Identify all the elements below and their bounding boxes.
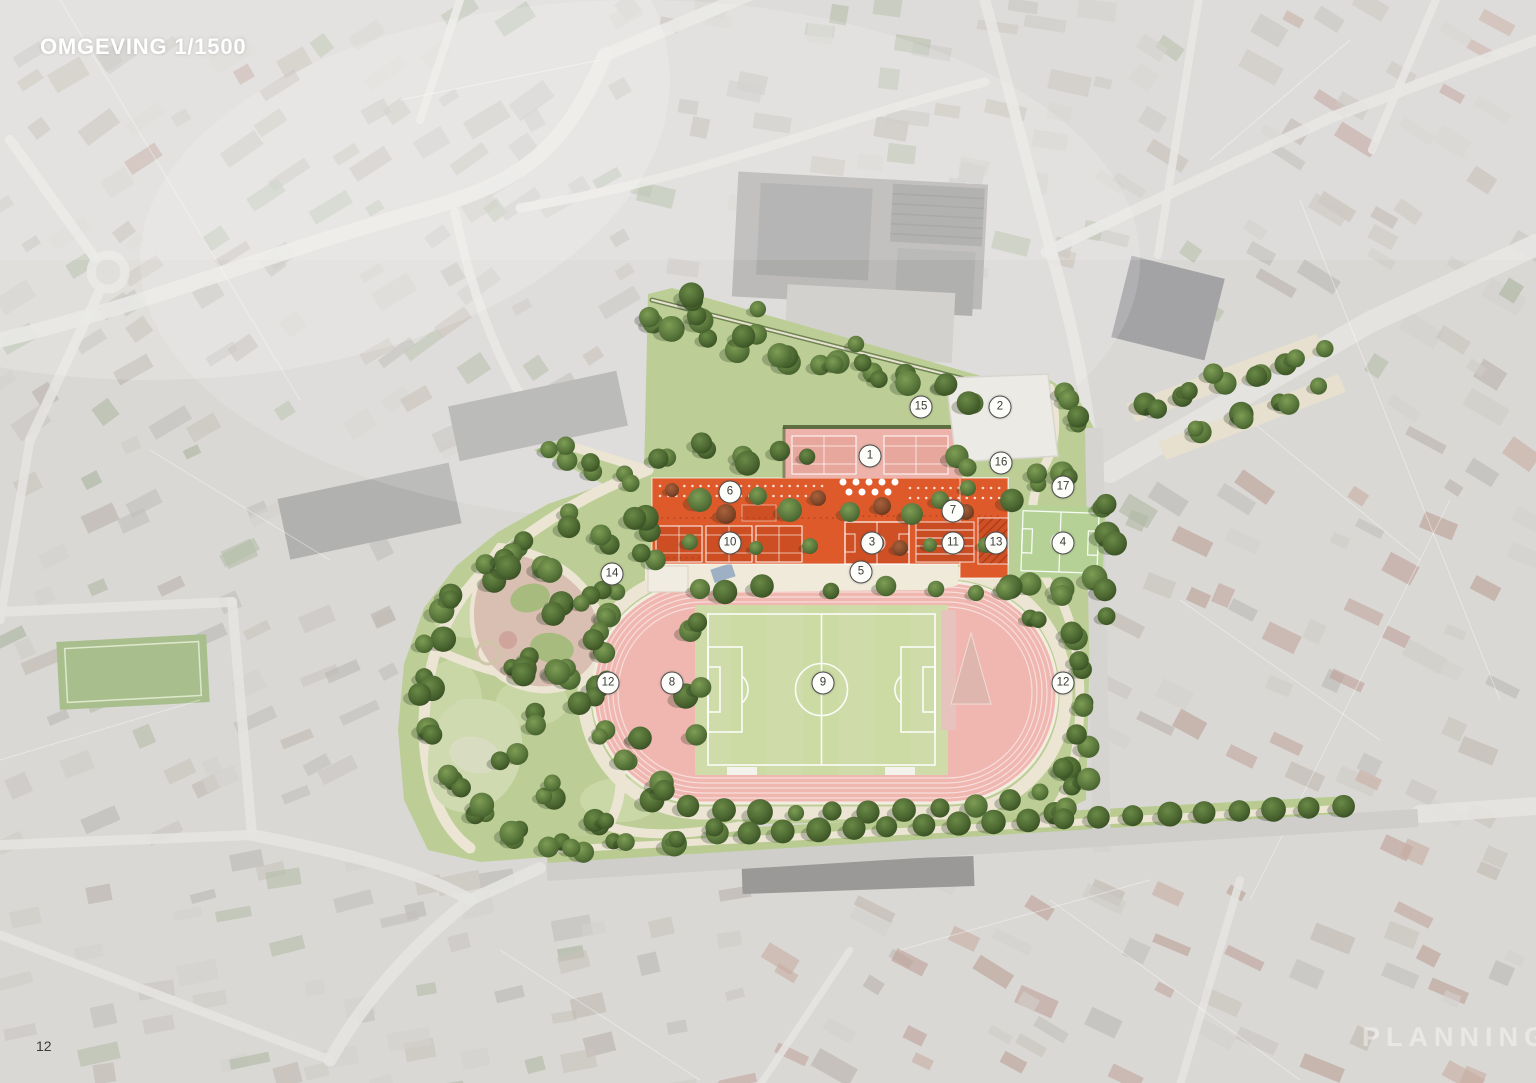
marker-10: 10 — [719, 532, 742, 555]
marker-6: 6 — [719, 481, 742, 504]
marker-12b: 12 — [1052, 672, 1075, 695]
marker-2: 2 — [989, 396, 1012, 419]
marker-7: 7 — [942, 500, 965, 523]
marker-16: 16 — [990, 452, 1013, 475]
marker-4: 4 — [1052, 532, 1075, 555]
marker-17: 17 — [1052, 476, 1075, 499]
marker-14: 14 — [601, 563, 624, 586]
marker-9: 9 — [812, 672, 835, 695]
marker-15: 15 — [910, 396, 933, 419]
plan-markers: 123456789101112121314151617 — [0, 0, 1536, 1083]
plan-page: 123456789101112121314151617 OMGEVING 1/1… — [0, 0, 1536, 1083]
watermark: PLANNING — [1362, 1022, 1536, 1053]
marker-5: 5 — [850, 561, 873, 584]
marker-1: 1 — [859, 445, 882, 468]
marker-13: 13 — [985, 532, 1008, 555]
page-number: 12 — [36, 1038, 52, 1054]
plan-title: OMGEVING 1/1500 — [40, 34, 246, 60]
marker-12a: 12 — [597, 672, 620, 695]
marker-8: 8 — [661, 672, 684, 695]
marker-3: 3 — [861, 532, 884, 555]
marker-11: 11 — [942, 532, 965, 555]
